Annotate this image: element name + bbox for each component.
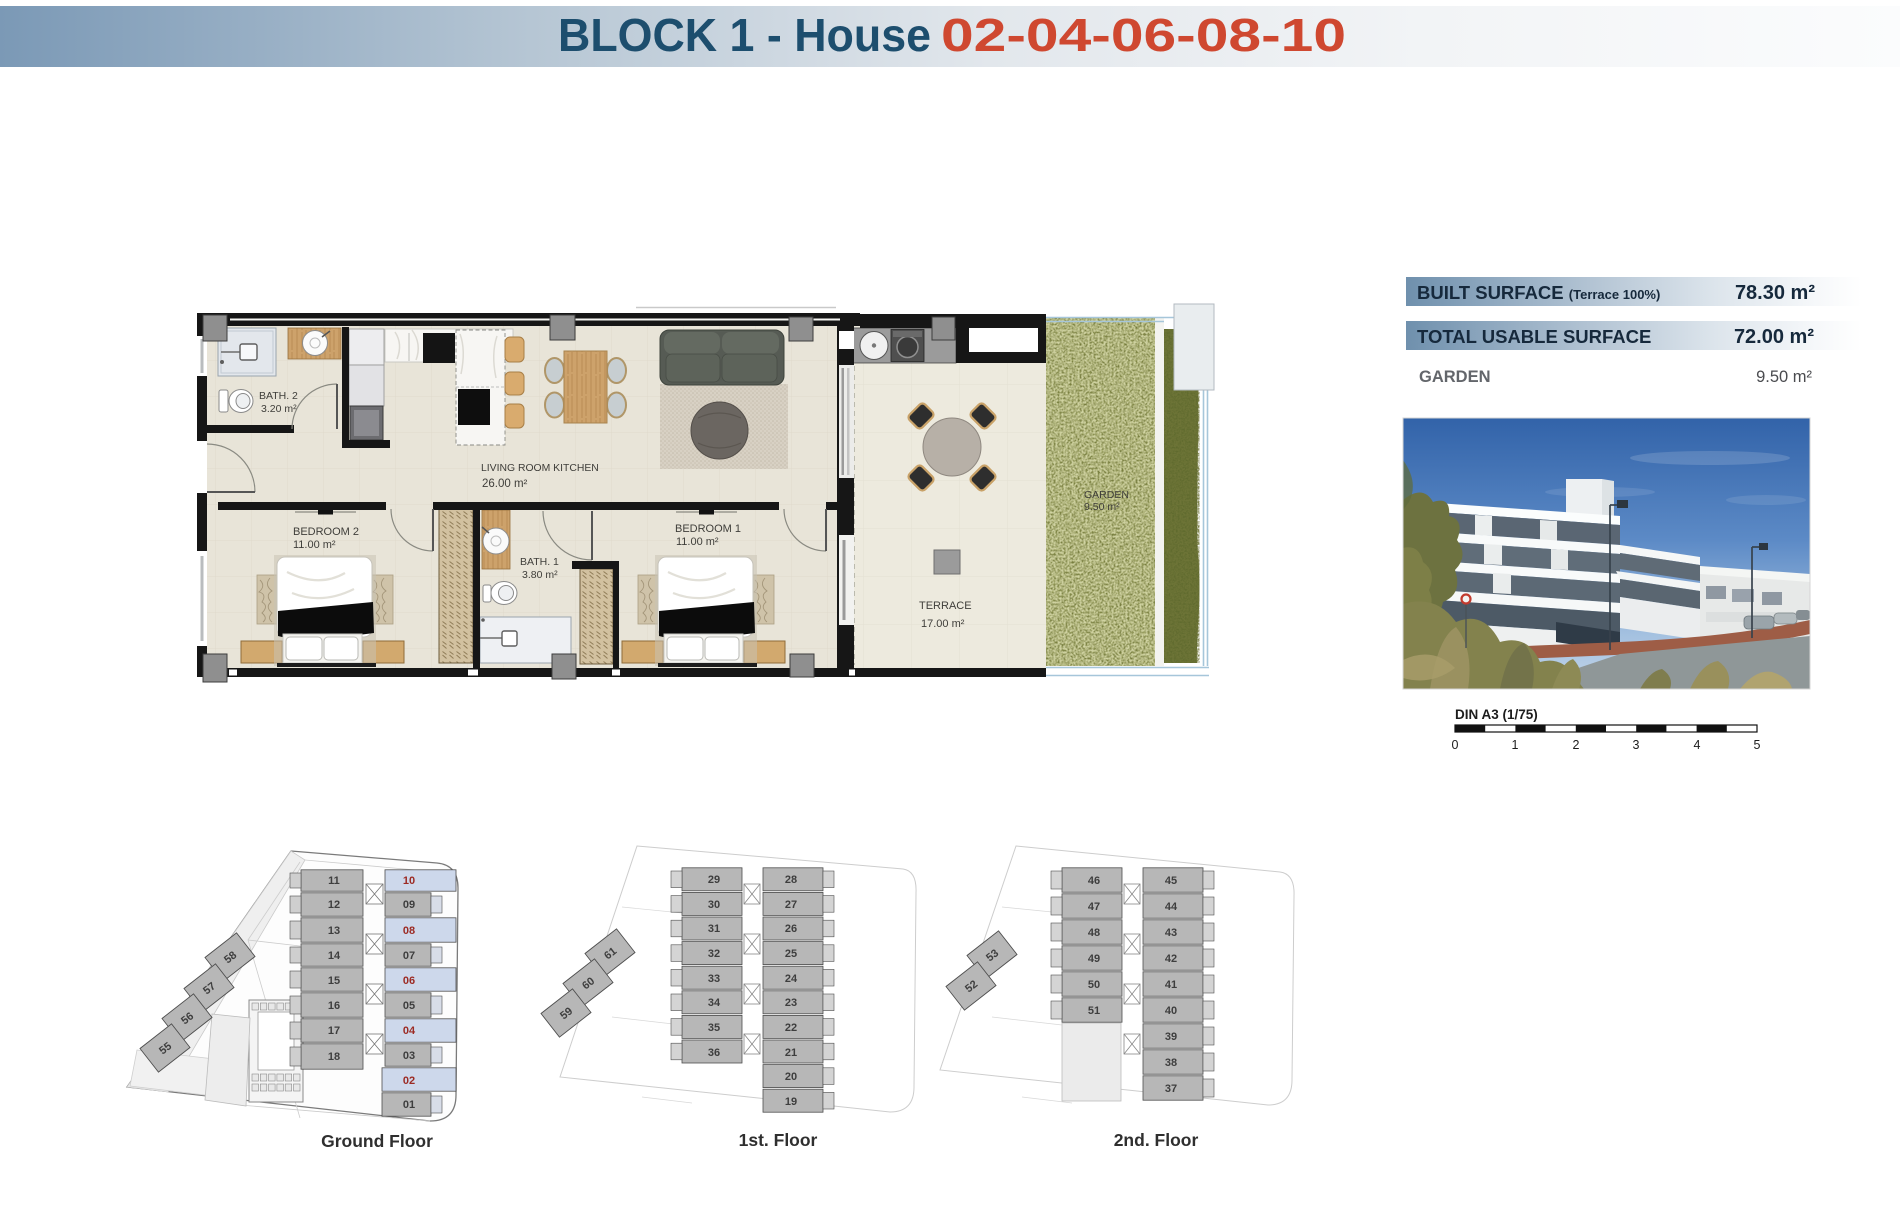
svg-text:28: 28 xyxy=(785,874,797,886)
svg-text:32: 32 xyxy=(708,948,720,960)
svg-text:37: 37 xyxy=(1165,1083,1177,1095)
svg-text:14: 14 xyxy=(328,950,341,962)
svg-text:20: 20 xyxy=(785,1071,797,1083)
svg-text:18: 18 xyxy=(328,1051,340,1063)
svg-text:72.00 m²: 72.00 m² xyxy=(1734,326,1814,348)
svg-text:26: 26 xyxy=(785,923,797,935)
svg-text:08: 08 xyxy=(403,925,415,937)
svg-text:50: 50 xyxy=(1088,979,1100,991)
svg-text:16: 16 xyxy=(328,1000,340,1012)
svg-text:12: 12 xyxy=(328,899,340,911)
svg-text:BEDROOM 2: BEDROOM 2 xyxy=(293,526,359,538)
svg-text:LIVING ROOM KITCHEN: LIVING ROOM KITCHEN xyxy=(481,463,599,474)
svg-text:29: 29 xyxy=(708,874,720,886)
svg-text:2: 2 xyxy=(1573,738,1580,752)
svg-text:11.00 m²: 11.00 m² xyxy=(293,539,336,551)
svg-text:22: 22 xyxy=(785,1022,797,1034)
svg-text:Ground Floor: Ground Floor xyxy=(321,1131,433,1151)
svg-text:BLOCK 1 - House: BLOCK 1 - House xyxy=(558,9,931,61)
svg-text:15: 15 xyxy=(328,975,340,987)
svg-text:30: 30 xyxy=(708,899,720,911)
svg-text:11.00 m²: 11.00 m² xyxy=(676,536,719,548)
svg-text:DIN A3 (1/75): DIN A3 (1/75) xyxy=(1455,707,1538,722)
svg-text:BEDROOM 1: BEDROOM 1 xyxy=(675,523,741,535)
svg-text:2nd. Floor: 2nd. Floor xyxy=(1114,1130,1199,1150)
svg-text:03: 03 xyxy=(403,1050,415,1062)
svg-text:49: 49 xyxy=(1088,953,1100,965)
svg-text:1st. Floor: 1st. Floor xyxy=(739,1130,818,1150)
svg-text:04: 04 xyxy=(403,1025,416,1037)
svg-text:46: 46 xyxy=(1088,875,1100,887)
svg-text:BATH. 2: BATH. 2 xyxy=(259,390,298,402)
svg-text:33: 33 xyxy=(708,973,720,985)
svg-text:26.00 m²: 26.00 m² xyxy=(482,478,528,490)
svg-text:31: 31 xyxy=(708,923,720,935)
svg-text:19: 19 xyxy=(785,1096,797,1108)
svg-text:GARDEN: GARDEN xyxy=(1084,489,1129,501)
svg-text:40: 40 xyxy=(1165,1005,1177,1017)
svg-text:38: 38 xyxy=(1165,1057,1177,1069)
svg-text:06: 06 xyxy=(403,975,415,987)
svg-text:17: 17 xyxy=(328,1025,340,1037)
svg-text:3.80 m²: 3.80 m² xyxy=(522,569,558,581)
svg-text:35: 35 xyxy=(708,1022,720,1034)
svg-text:17.00 m²: 17.00 m² xyxy=(921,618,965,630)
svg-text:47: 47 xyxy=(1088,901,1100,913)
svg-text:51: 51 xyxy=(1088,1005,1100,1017)
svg-text:BATH. 1: BATH. 1 xyxy=(520,556,559,568)
svg-text:25: 25 xyxy=(785,948,797,960)
svg-text:42: 42 xyxy=(1165,953,1177,965)
svg-text:43: 43 xyxy=(1165,927,1177,939)
svg-text:TERRACE: TERRACE xyxy=(919,600,972,612)
svg-text:3.20 m²: 3.20 m² xyxy=(261,403,297,415)
svg-text:13: 13 xyxy=(328,925,340,937)
svg-text:5: 5 xyxy=(1754,738,1761,752)
svg-text:3: 3 xyxy=(1633,738,1640,752)
svg-text:23: 23 xyxy=(785,997,797,1009)
svg-text:4: 4 xyxy=(1694,738,1701,752)
svg-text:44: 44 xyxy=(1165,901,1178,913)
svg-text:9.50 m²: 9.50 m² xyxy=(1756,368,1812,386)
svg-text:9.50 m²: 9.50 m² xyxy=(1084,501,1120,513)
svg-text:21: 21 xyxy=(785,1047,797,1059)
svg-text:07: 07 xyxy=(403,950,415,962)
svg-text:05: 05 xyxy=(403,1000,415,1012)
svg-text:1: 1 xyxy=(1512,738,1519,752)
svg-text:27: 27 xyxy=(785,899,797,911)
svg-text:41: 41 xyxy=(1165,979,1177,991)
svg-text:11: 11 xyxy=(328,875,340,887)
svg-text:34: 34 xyxy=(708,997,721,1009)
svg-text:0: 0 xyxy=(1452,738,1459,752)
svg-text:24: 24 xyxy=(785,973,798,985)
svg-text:TOTAL USABLE SURFACE: TOTAL USABLE SURFACE xyxy=(1417,326,1651,347)
svg-text:10: 10 xyxy=(403,875,415,887)
svg-text:01: 01 xyxy=(403,1099,415,1111)
svg-text:36: 36 xyxy=(708,1047,720,1059)
svg-text:45: 45 xyxy=(1165,875,1177,887)
svg-text:02: 02 xyxy=(403,1075,415,1087)
svg-text:78.30 m²: 78.30 m² xyxy=(1735,282,1815,304)
svg-text:48: 48 xyxy=(1088,927,1100,939)
svg-text:GARDEN: GARDEN xyxy=(1419,368,1491,386)
svg-text:02-04-06-08-10: 02-04-06-08-10 xyxy=(941,9,1346,61)
svg-text:39: 39 xyxy=(1165,1031,1177,1043)
svg-text:09: 09 xyxy=(403,899,415,911)
